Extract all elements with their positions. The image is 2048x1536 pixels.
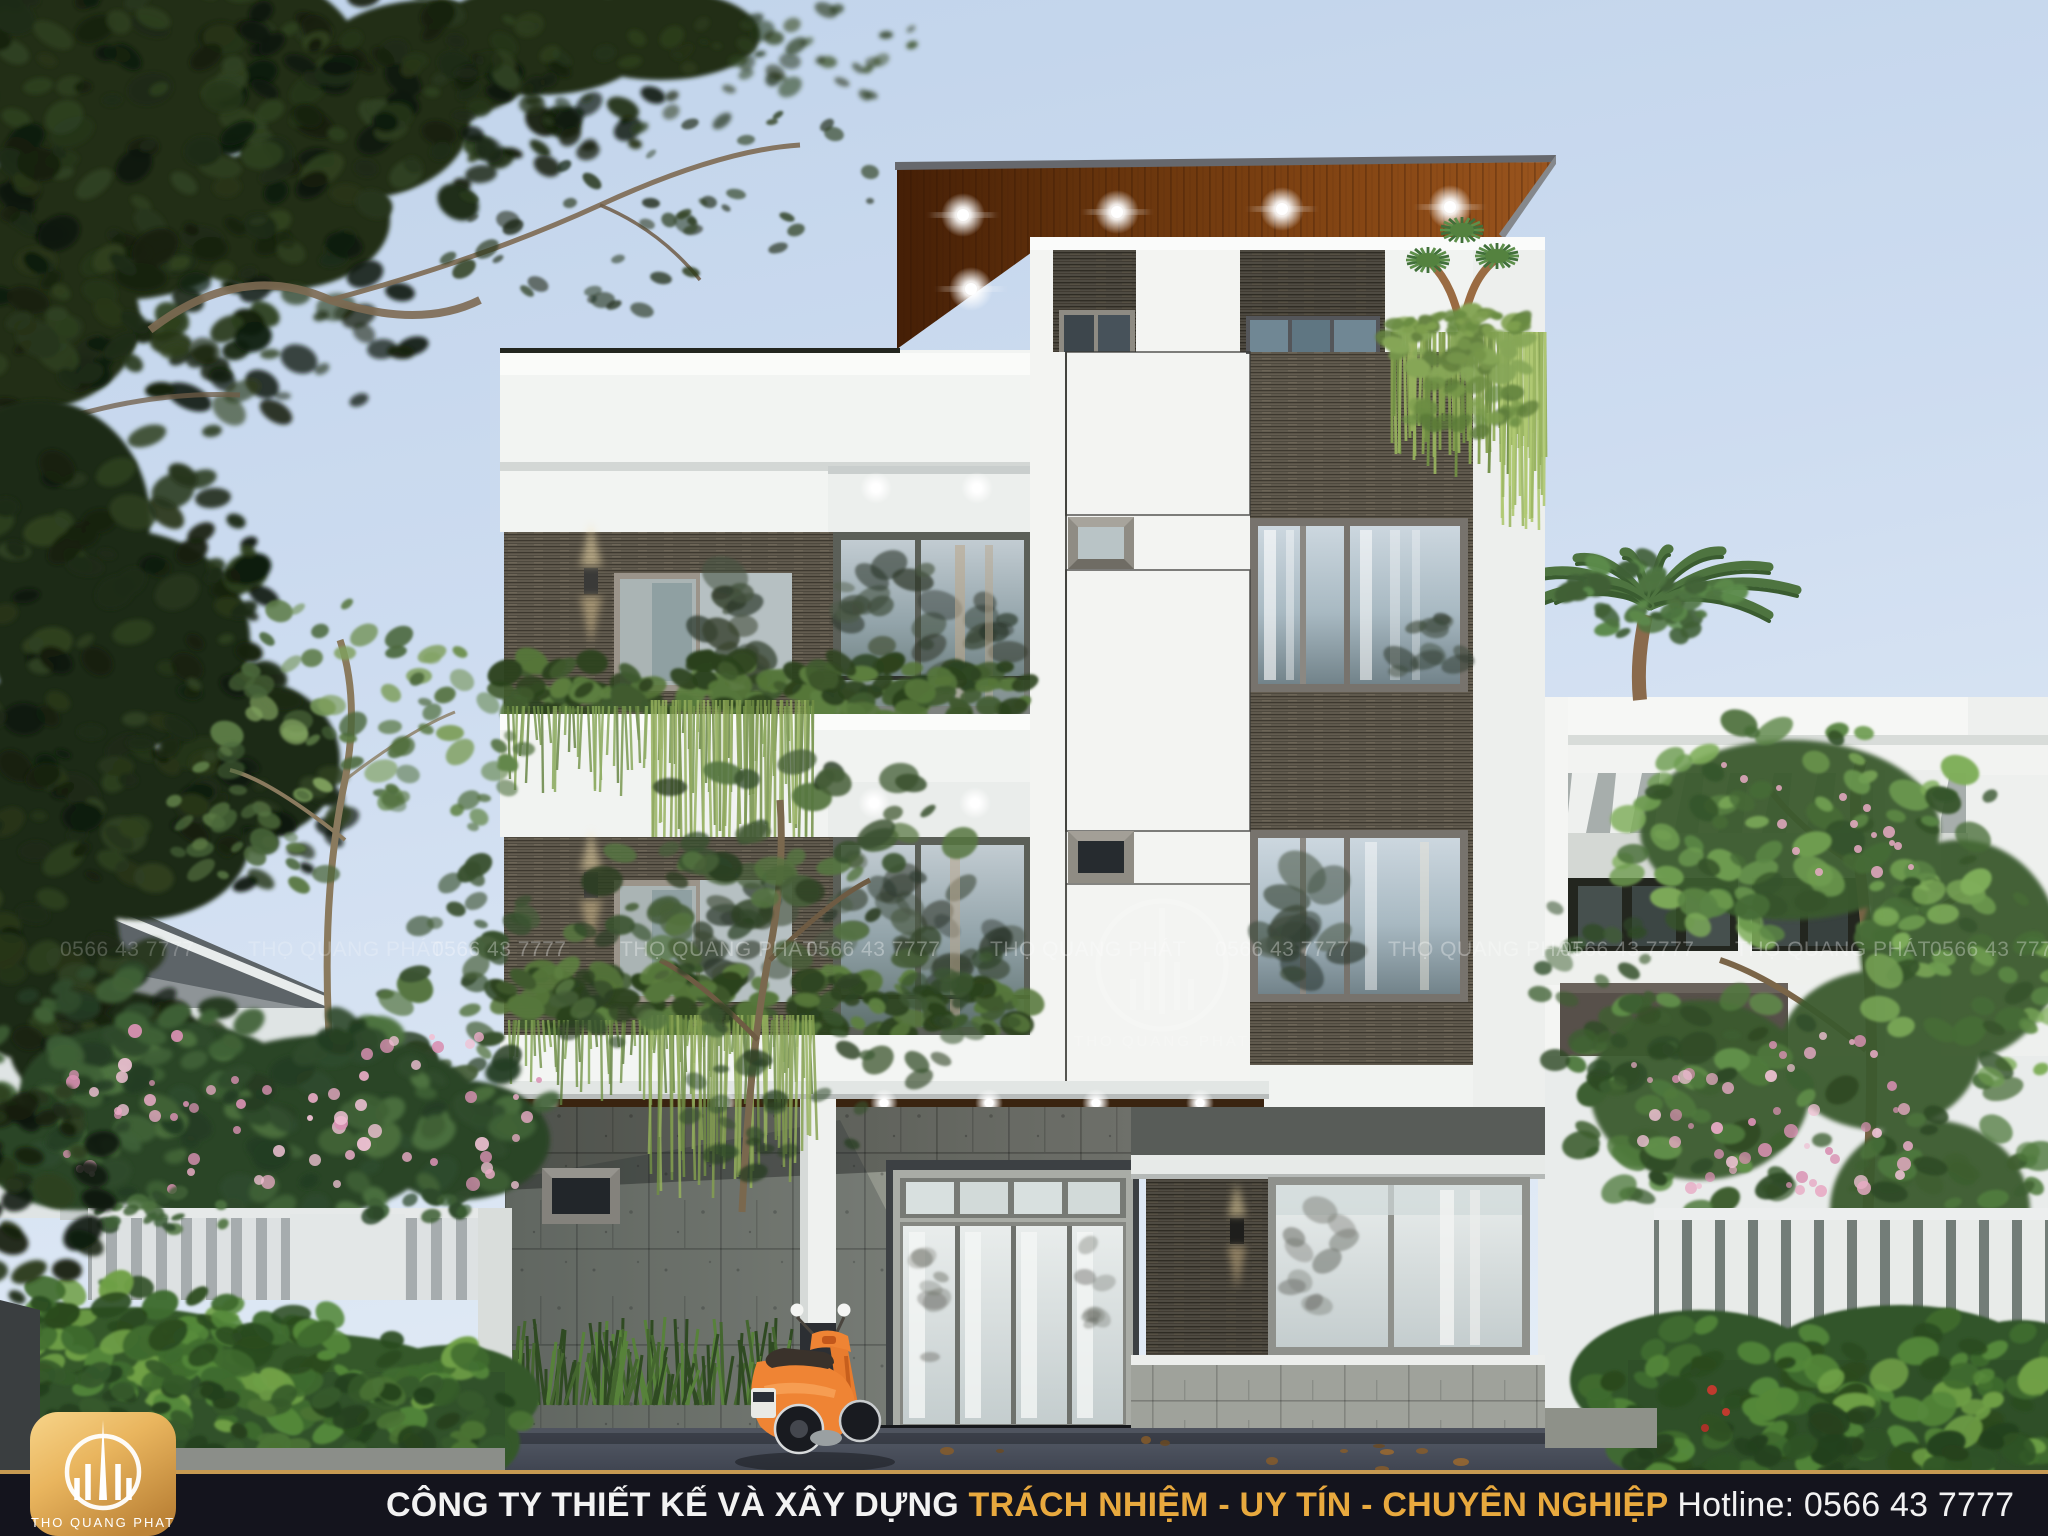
svg-text:0566 43 7777: 0566 43 7777: [1930, 938, 2048, 961]
svg-text:THỌ QUANG PHÁT: THỌ QUANG PHÁT: [248, 938, 444, 961]
svg-text:0566 43 7777: 0566 43 7777: [60, 938, 194, 961]
svg-text:CÔNG TY THIẾT KẾ VÀ XÂY DỰNG T: CÔNG TY THIẾT KẾ VÀ XÂY DỰNG TRÁCH NHIỆM…: [386, 1485, 2014, 1524]
svg-text:0566 43 7777: 0566 43 7777: [432, 938, 566, 961]
svg-text:THỌ QUANG PHÁT: THỌ QUANG PHÁT: [620, 938, 816, 961]
svg-text:0566 43 7777: 0566 43 7777: [1215, 938, 1349, 961]
svg-text:THỌ QUANG PHÁT: THỌ QUANG PHÁT: [1388, 938, 1584, 961]
svg-text:0566 43 7777: 0566 43 7777: [1560, 938, 1694, 961]
svg-text:THO QUANG PHAT: THO QUANG PHAT: [31, 1515, 175, 1530]
svg-text:THO QUANG PHAT: THO QUANG PHAT: [1074, 1033, 1250, 1050]
svg-text:THỌ QUANG PHÁT: THỌ QUANG PHÁT: [1735, 938, 1931, 961]
svg-text:0566 43 7777: 0566 43 7777: [806, 938, 940, 961]
svg-text:THỌ QUANG PHÁT: THỌ QUANG PHÁT: [990, 938, 1186, 961]
